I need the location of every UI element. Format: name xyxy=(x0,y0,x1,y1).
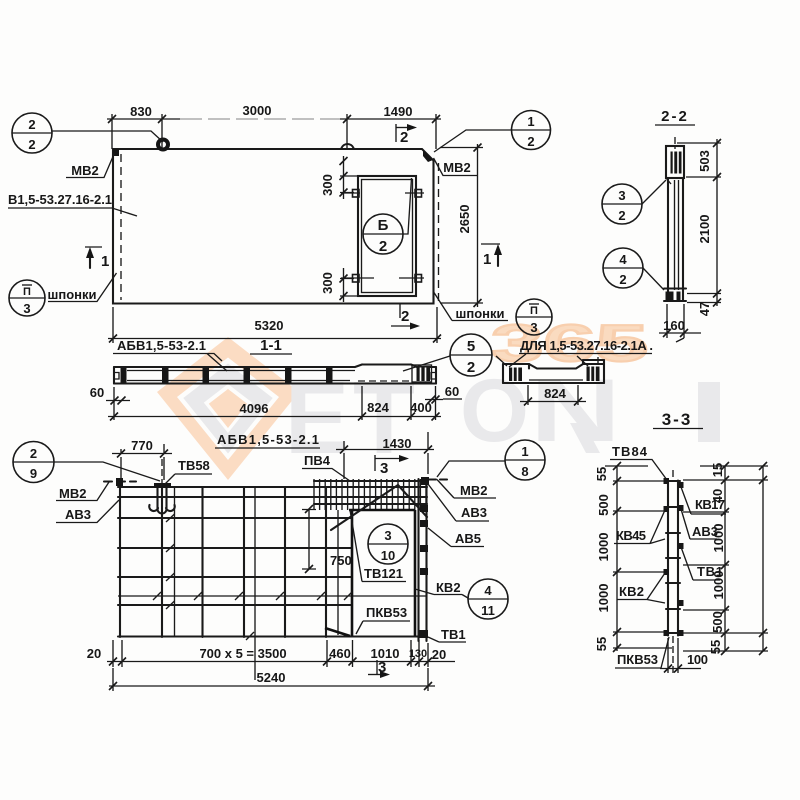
svg-text:9: 9 xyxy=(30,466,37,481)
svg-text:ТВ58: ТВ58 xyxy=(178,458,210,473)
svg-text:ТВ121: ТВ121 xyxy=(364,566,403,581)
svg-text:2650: 2650 xyxy=(457,205,472,234)
svg-text:60: 60 xyxy=(90,385,104,400)
svg-text:ДЛЯ 1,5-53.27.16-2.1А .: ДЛЯ 1,5-53.27.16-2.1А . xyxy=(520,338,653,353)
svg-text:МВ2: МВ2 xyxy=(443,160,470,175)
svg-text:2: 2 xyxy=(401,308,409,325)
svg-text:3000: 3000 xyxy=(243,103,272,118)
svg-text:100: 100 xyxy=(687,652,708,667)
svg-text:ТВ1: ТВ1 xyxy=(441,627,466,642)
svg-text:МВ2: МВ2 xyxy=(59,486,86,501)
svg-text:Б: Б xyxy=(378,217,389,234)
svg-text:830: 830 xyxy=(130,104,152,119)
svg-text:11: 11 xyxy=(481,603,495,618)
svg-text:2: 2 xyxy=(527,134,534,149)
svg-text:20: 20 xyxy=(432,647,446,662)
svg-text:60: 60 xyxy=(445,384,459,399)
svg-text:770: 770 xyxy=(131,438,153,453)
svg-text:4096: 4096 xyxy=(240,401,269,416)
svg-text:5: 5 xyxy=(467,338,475,355)
svg-text:2: 2 xyxy=(379,238,387,255)
svg-text:АБВ1,5-53-2.1: АБВ1,5-53-2.1 xyxy=(217,432,319,447)
svg-text:3: 3 xyxy=(380,460,388,477)
svg-text:1-1: 1-1 xyxy=(260,337,282,354)
svg-text:8: 8 xyxy=(521,464,528,479)
svg-text:824: 824 xyxy=(367,400,389,415)
svg-text:1000: 1000 xyxy=(596,584,611,613)
svg-text:КВ17: КВ17 xyxy=(695,497,725,512)
svg-text:2: 2 xyxy=(618,208,625,223)
svg-text:3-3: 3-3 xyxy=(662,410,693,429)
svg-text:2: 2 xyxy=(467,359,475,376)
svg-text:1: 1 xyxy=(483,251,491,268)
svg-text:2: 2 xyxy=(400,129,408,146)
svg-text:П: П xyxy=(530,305,538,317)
svg-text:160: 160 xyxy=(663,318,685,333)
svg-text:шпонки: шпонки xyxy=(48,287,97,302)
svg-text:МВ2: МВ2 xyxy=(71,163,98,178)
svg-text:2: 2 xyxy=(30,446,37,461)
svg-text:130: 130 xyxy=(409,648,427,660)
svg-text:3: 3 xyxy=(23,301,30,316)
svg-text:4: 4 xyxy=(619,252,627,267)
svg-text:4: 4 xyxy=(484,583,492,598)
svg-text:750: 750 xyxy=(330,553,352,568)
svg-text:47: 47 xyxy=(697,302,712,316)
svg-text:1490: 1490 xyxy=(384,104,413,119)
svg-text:503: 503 xyxy=(697,150,712,172)
svg-text:1000: 1000 xyxy=(596,533,611,562)
svg-text:КВ45: КВ45 xyxy=(616,528,646,543)
svg-text:3: 3 xyxy=(384,528,391,543)
svg-text:700 х 5 = 3500: 700 х 5 = 3500 xyxy=(199,646,286,661)
svg-text:АВ5: АВ5 xyxy=(455,531,481,546)
svg-text:15: 15 xyxy=(710,463,725,477)
svg-text:460: 460 xyxy=(329,646,351,661)
svg-text:55: 55 xyxy=(708,640,723,654)
svg-text:300: 300 xyxy=(320,272,335,294)
svg-text:1: 1 xyxy=(527,114,534,129)
svg-text:2100: 2100 xyxy=(697,215,712,244)
svg-text:5320: 5320 xyxy=(255,318,284,333)
svg-text:10: 10 xyxy=(381,548,395,563)
svg-text:500: 500 xyxy=(710,611,725,633)
svg-text:КВ2: КВ2 xyxy=(436,580,461,595)
svg-text:П: П xyxy=(23,286,31,298)
svg-text:шпонки: шпонки xyxy=(456,306,505,321)
svg-text:ПКВ53: ПКВ53 xyxy=(366,605,407,620)
svg-text:АВ3: АВ3 xyxy=(461,505,487,520)
svg-text:2: 2 xyxy=(28,117,35,132)
svg-text:1: 1 xyxy=(521,444,528,459)
svg-text:20: 20 xyxy=(87,646,101,661)
svg-text:55: 55 xyxy=(594,467,609,481)
svg-text:ПВ4: ПВ4 xyxy=(304,453,331,468)
svg-text:В1,5-53.27.16-2.1: В1,5-53.27.16-2.1 xyxy=(8,192,112,207)
svg-text:ТВ1: ТВ1 xyxy=(697,564,723,579)
svg-text:ПКВ53: ПКВ53 xyxy=(617,652,658,667)
svg-text:МВ2: МВ2 xyxy=(460,483,487,498)
svg-text:2: 2 xyxy=(619,272,626,287)
svg-text:3: 3 xyxy=(530,320,537,335)
svg-text:АВ3: АВ3 xyxy=(692,524,718,539)
svg-text:1: 1 xyxy=(101,253,109,270)
svg-text:N: N xyxy=(530,360,621,460)
svg-text:1430: 1430 xyxy=(383,436,412,451)
svg-text:3: 3 xyxy=(618,188,625,203)
svg-text:АВ3: АВ3 xyxy=(65,507,91,522)
svg-text:500: 500 xyxy=(596,494,611,516)
svg-text:5240: 5240 xyxy=(257,670,286,685)
svg-text:824: 824 xyxy=(544,386,566,401)
svg-text:2-2: 2-2 xyxy=(661,108,689,125)
svg-text:ТВ84: ТВ84 xyxy=(612,444,648,459)
svg-text:1010: 1010 xyxy=(371,646,400,661)
svg-text:55: 55 xyxy=(594,637,609,651)
svg-text:300: 300 xyxy=(320,174,335,196)
svg-text:2: 2 xyxy=(28,137,35,152)
svg-text:АБВ1,5-53-2.1: АБВ1,5-53-2.1 xyxy=(117,338,206,353)
svg-text:КВ2: КВ2 xyxy=(619,584,644,599)
